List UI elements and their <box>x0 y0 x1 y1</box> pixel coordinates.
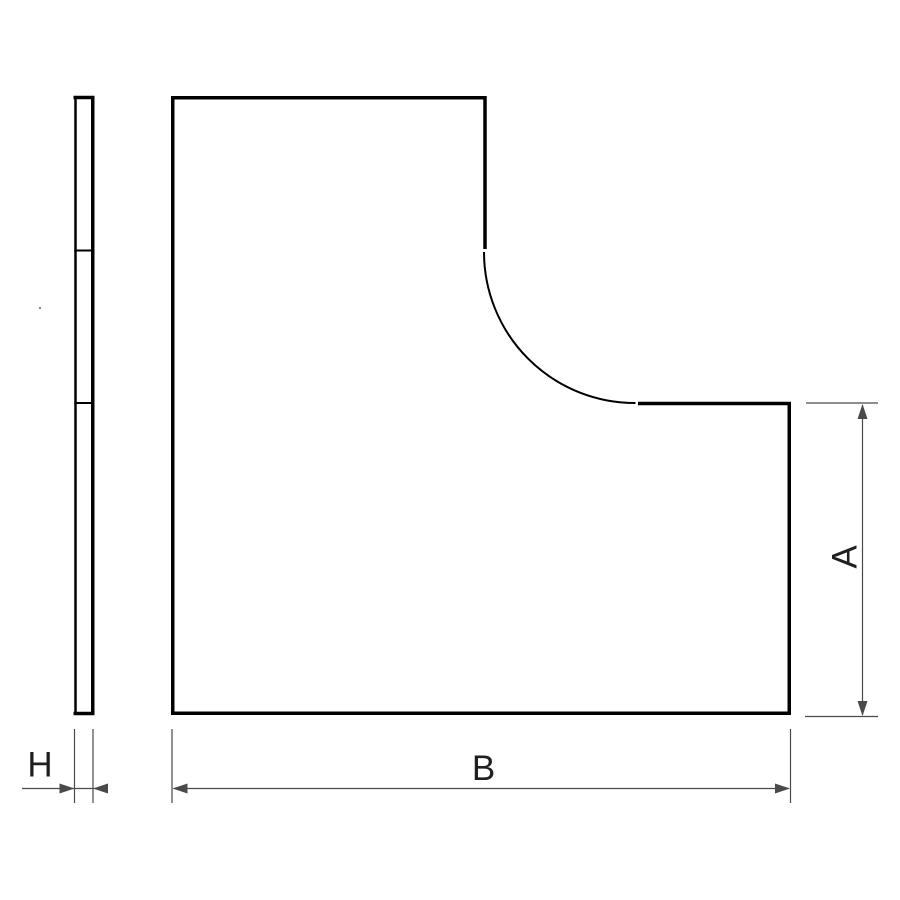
dimension-a-arrow-down <box>858 701 868 716</box>
dimension-b-label: B <box>472 749 495 788</box>
side-view <box>74 97 95 715</box>
plan-view-outline <box>173 98 790 714</box>
dimension-b-arrow-left <box>173 784 188 794</box>
plan-view-inner-corner-arc <box>484 252 636 403</box>
technical-drawing-page: A B H <box>0 0 900 900</box>
dimension-h-label: H <box>27 746 52 785</box>
dimension-h-arrow-left-pointing <box>93 784 108 794</box>
artifact-speck <box>39 307 41 309</box>
dimension-b-arrow-right <box>775 784 790 794</box>
technical-drawing-canvas: A B H <box>0 0 900 900</box>
plan-view <box>173 98 790 714</box>
dimension-a-arrow-up <box>858 404 868 419</box>
dimension-h-arrow-right-pointing <box>60 784 75 794</box>
dimension-a-label: A <box>826 545 865 569</box>
